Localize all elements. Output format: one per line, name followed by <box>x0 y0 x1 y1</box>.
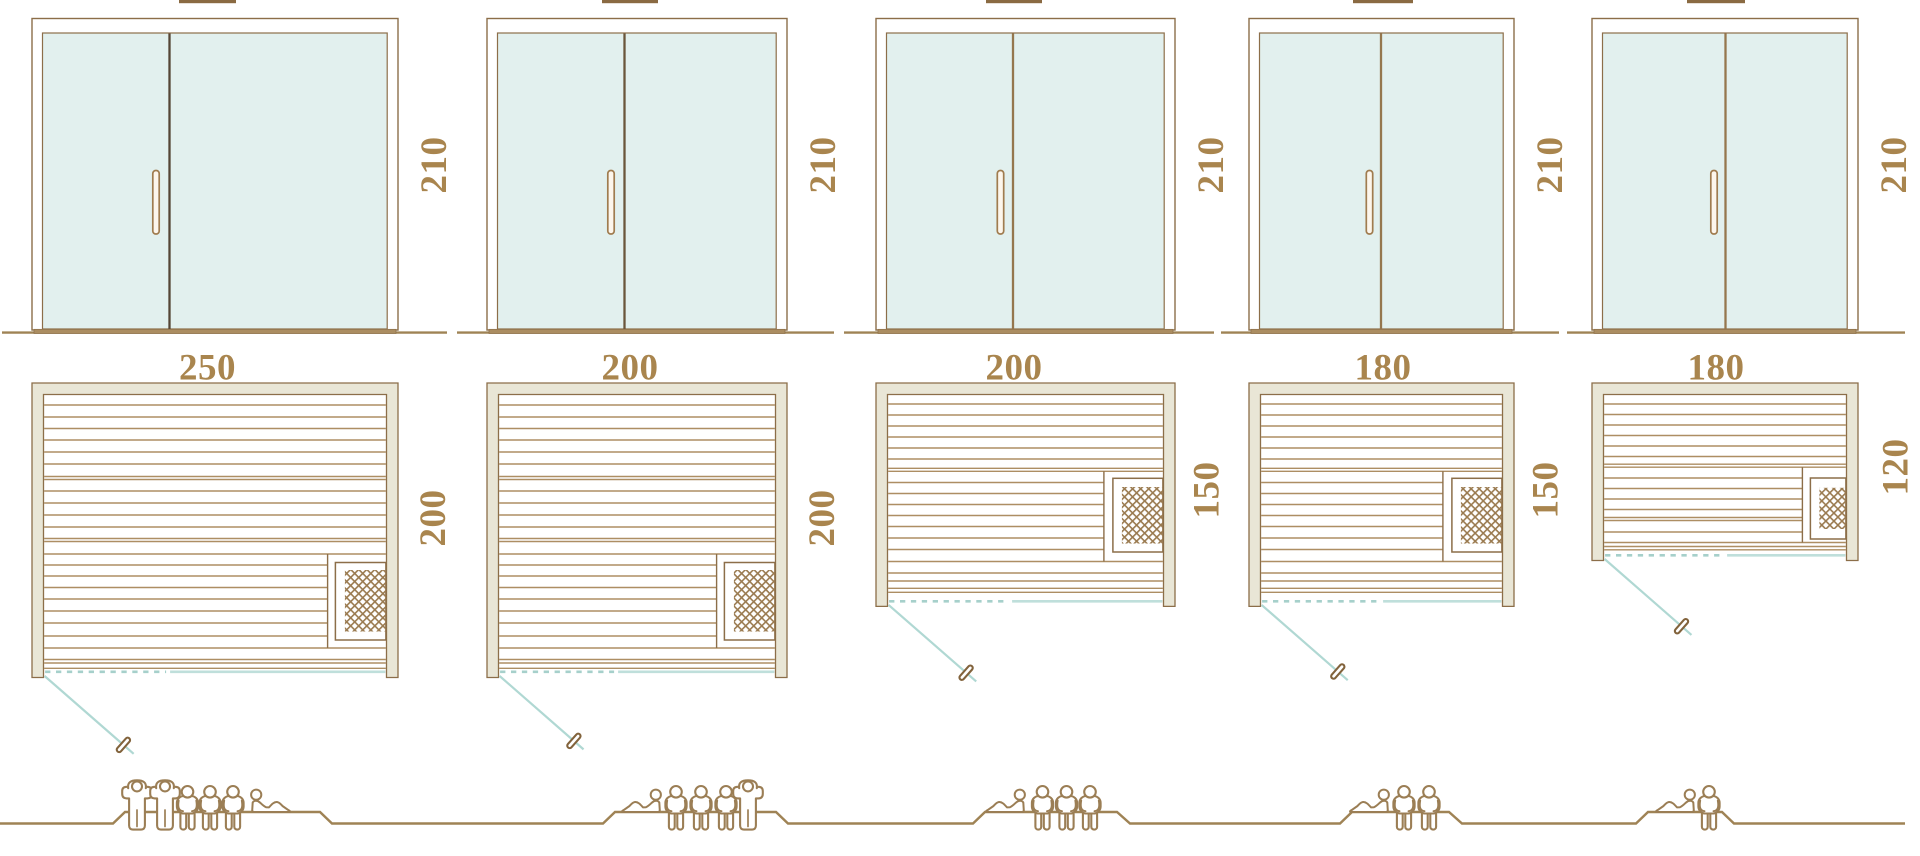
svg-text:200: 200 <box>413 490 454 547</box>
svg-text:210: 210 <box>1530 137 1571 194</box>
svg-text:210: 210 <box>1874 137 1915 194</box>
svg-text:150: 150 <box>1187 462 1228 519</box>
svg-text:210: 210 <box>1191 137 1232 194</box>
svg-text:150: 150 <box>1526 462 1567 519</box>
svg-text:200: 200 <box>802 490 843 547</box>
svg-text:120: 120 <box>1876 439 1917 496</box>
svg-text:210: 210 <box>803 137 844 194</box>
svg-text:210: 210 <box>414 137 455 194</box>
